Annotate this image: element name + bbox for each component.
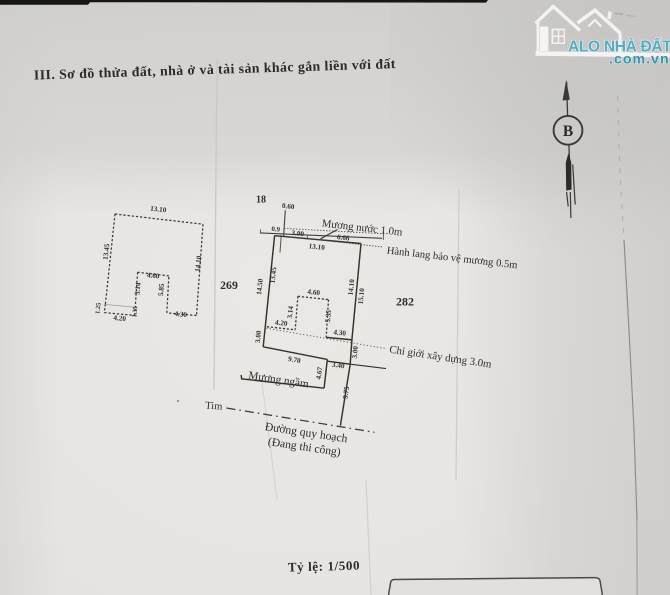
svg-text:4.30: 4.30 (333, 328, 347, 337)
svg-text:4.60: 4.60 (147, 271, 161, 280)
svg-text:5.35: 5.35 (324, 309, 333, 323)
svg-text:5.85: 5.85 (157, 283, 166, 297)
svg-text:3.00: 3.00 (351, 345, 360, 359)
svg-text:4.30: 4.30 (174, 310, 188, 319)
svg-text:3.14: 3.14 (133, 282, 142, 296)
svg-text:.com.vn: .com.vn (609, 52, 670, 68)
svg-text:18: 18 (256, 195, 266, 206)
svg-text:282: 282 (396, 295, 414, 309)
svg-text:3.00: 3.00 (254, 330, 263, 344)
svg-text:1.25: 1.25 (94, 302, 102, 314)
svg-text:Tỷ lệ: 1/500: Tỷ lệ: 1/500 (288, 558, 361, 575)
svg-text:0.60: 0.60 (282, 202, 296, 211)
svg-text:3.14: 3.14 (286, 305, 295, 319)
svg-text:B: B (563, 123, 573, 140)
svg-text:4.20: 4.20 (275, 319, 289, 328)
svg-text:4.20: 4.20 (113, 314, 127, 323)
svg-text:Tim: Tim (205, 401, 223, 413)
svg-text:1.35: 1.35 (131, 306, 139, 318)
svg-text:4.60: 4.60 (307, 288, 321, 297)
svg-text:269: 269 (220, 278, 238, 292)
svg-text:0.9: 0.9 (271, 226, 281, 234)
